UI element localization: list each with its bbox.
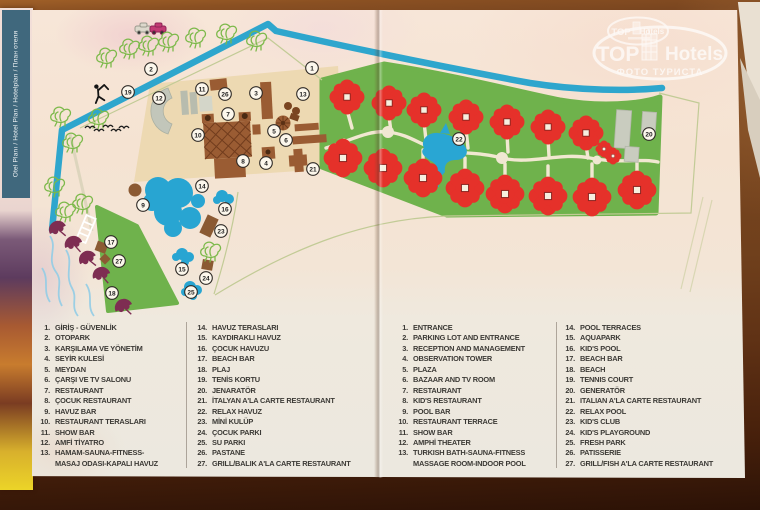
legend-number: 18. [558, 365, 575, 375]
legend-number: 25. [558, 438, 575, 448]
legend-text: MİNİ KULÜP [212, 417, 253, 427]
legend-item: 8.ÇOCUK RESTAURANT [33, 396, 185, 406]
legend-number: 19. [558, 375, 575, 385]
legend-number: 27. [558, 459, 575, 469]
legend-item: 3.RECEPTION AND MANAGEMENT [391, 344, 553, 354]
legend-number: 8. [33, 396, 50, 406]
legend-text: PATISSERIE [580, 448, 621, 458]
legend-number: 3. [391, 344, 408, 354]
legend-text: KID'S RESTAURANT [413, 396, 482, 406]
legend-number: 16. [190, 344, 207, 354]
legend-item: 4.OBSERVATION TOWER [391, 354, 553, 364]
legend-number: 19. [190, 375, 207, 385]
legend-item: 17.BEACH BAR [558, 354, 740, 364]
legend-text: RELAX HAVUZ [212, 407, 262, 417]
legend-text: GRILL/BALIK A'LA CARTE RESTAURANT [212, 459, 351, 469]
legend-number: 7. [391, 386, 408, 396]
spine-title-band: Otel Planı / Hotel Plan / Hotelplan / Пл… [2, 10, 30, 198]
legend-number: 23. [558, 417, 575, 427]
legend-number: 13. [391, 448, 408, 458]
legend-text: PLAZA [413, 365, 437, 375]
legend-item: 20.GENERATÖR [558, 386, 740, 396]
legend-text: SHOW BAR [55, 428, 94, 438]
legend-number: 10. [33, 417, 50, 427]
legend-number: 14. [558, 323, 575, 333]
legend-number: 2. [391, 333, 408, 343]
legend-text: ENTRANCE [413, 323, 452, 333]
legend-number: 3. [33, 344, 50, 354]
legend-number: 1. [391, 323, 408, 333]
legend-number: 6. [391, 375, 408, 385]
legend-text: HAMAM-SAUNA-FITNESS- MASAJ ODASI-KAPALI … [55, 448, 158, 469]
legend-number: 10. [391, 417, 408, 427]
legend-item: 21.ITALIAN A'LA CARTE RESTAURANT [558, 396, 740, 406]
legend-number: 12. [33, 438, 50, 448]
legend-item: 5.MEYDAN [33, 365, 185, 375]
legend-number: 2. [33, 333, 50, 343]
legend-number: 16. [558, 344, 575, 354]
legend-item: 24.KID'S PLAYGROUND [558, 428, 740, 438]
legend-item: 17.BEACH BAR [190, 354, 370, 364]
legend-number: 15. [190, 333, 207, 343]
legend-item: 9.POOL BAR [391, 407, 553, 417]
legend-item: 5.PLAZA [391, 365, 553, 375]
legend-number: 24. [190, 428, 207, 438]
legend-text: GENERATÖR [580, 386, 625, 396]
legend-number: 9. [391, 407, 408, 417]
legend-item: 14.POOL TERRACES [558, 323, 740, 333]
legend-number: 26. [190, 448, 207, 458]
legend-text: HAVUZ TERASLARI [212, 323, 278, 333]
photo-of-hotel-map-brochure: Otel Planı / Hotel Plan / Hotelplan / Пл… [0, 0, 760, 510]
legend-item: 25.FRESH PARK [558, 438, 740, 448]
legend-text: RESTAURANT TERRACE [413, 417, 498, 427]
legend-number: 7. [33, 386, 50, 396]
legend-item: 16.ÇOCUK HAVUZU [190, 344, 370, 354]
legend-item: 6.BAZAAR AND TV ROOM [391, 375, 553, 385]
legend-item: 3.KARŞILAMA VE YÖNETİM [33, 344, 185, 354]
legend-item: 11.SHOW BAR [391, 428, 553, 438]
legend-item: 12.AMPHİ THEATER [391, 438, 553, 448]
legend-column-tr-2: 14.HAVUZ TERASLARI15.KAYDIRAKLI HAVUZ16.… [190, 323, 370, 469]
legend-text: SHOW BAR [413, 428, 452, 438]
legend-text: OTOPARK [55, 333, 90, 343]
spine-title: Otel Planı / Hotel Plan / Hotelplan / Пл… [13, 31, 20, 177]
legend-text: ITALIAN A'LA CARTE RESTAURANT [580, 396, 701, 406]
legend-text: AMPHİ THEATER [413, 438, 471, 448]
legend-text: BAZAAR AND TV ROOM [413, 375, 495, 385]
legend-text: PLAJ [212, 365, 230, 375]
legend-number: 13. [33, 448, 50, 458]
legend-item: 21.İTALYAN A'LA CARTE RESTAURANT [190, 396, 370, 406]
legend-number: 22. [558, 407, 575, 417]
legend-number: 4. [391, 354, 408, 364]
legend-number: 26. [558, 448, 575, 458]
legend-text: GİRİŞ - GÜVENLİK [55, 323, 117, 333]
legend-item: 18.BEACH [558, 365, 740, 375]
legend-item: 8.KID'S RESTAURANT [391, 396, 553, 406]
legend-number: 22. [190, 407, 207, 417]
legend-number: 8. [391, 396, 408, 406]
legend-number: 5. [33, 365, 50, 375]
legend-number: 14. [190, 323, 207, 333]
legend-item: 2.PARKING LOT AND ENTRANCE [391, 333, 553, 343]
legend-text: RESTAURANT [55, 386, 103, 396]
legend-text: RESTAURANT [413, 386, 461, 396]
legend-number: 9. [33, 407, 50, 417]
legend-number: 25. [190, 438, 207, 448]
legend-item: 25.SU PARKI [190, 438, 370, 448]
legend-item: 9.HAVUZ BAR [33, 407, 185, 417]
legend-item: 2.OTOPARK [33, 333, 185, 343]
legend-number: 18. [190, 365, 207, 375]
legend-text: AMFİ TİYATRO [55, 438, 104, 448]
legend-item: 15.AQUAPARK [558, 333, 740, 343]
legend-item: 18.PLAJ [190, 365, 370, 375]
legend-text: RECEPTION AND MANAGEMENT [413, 344, 525, 354]
brochure-cover-edge: Otel Planı / Hotel Plan / Hotelplan / Пл… [0, 8, 33, 490]
legend-number: 6. [33, 375, 50, 385]
legend-text: HAVUZ BAR [55, 407, 96, 417]
legend-item: 1.ENTRANCE [391, 323, 553, 333]
legend-text: AQUAPARK [580, 333, 621, 343]
legend-text: SU PARKI [212, 438, 245, 448]
legend-item: 7.RESTAURANT [33, 386, 185, 396]
legend-item: 23.KID'S CLUB [558, 417, 740, 427]
legend-text: JENARATÖR [212, 386, 256, 396]
legend-item: 4.SEYİR KULESİ [33, 354, 185, 364]
legend-text: RESTAURANT TERASLARI [55, 417, 146, 427]
legend-number: 24. [558, 428, 575, 438]
legend-item: 10.RESTAURANT TERASLARI [33, 417, 185, 427]
legend-item: 19.TENİS KORTU [190, 375, 370, 385]
legend-item: 13.HAMAM-SAUNA-FITNESS- MASAJ ODASI-KAPA… [33, 448, 185, 469]
legend-text: KARŞILAMA VE YÖNETİM [55, 344, 143, 354]
legend-text: PASTANE [212, 448, 245, 458]
legend-divider [186, 322, 187, 468]
legend-column-tr-1: 1.GİRİŞ - GÜVENLİK2.OTOPARK3.KARŞILAMA V… [33, 323, 185, 469]
legend-text: ÇARŞI VE TV SALONU [55, 375, 131, 385]
legend-item: 15.KAYDIRAKLI HAVUZ [190, 333, 370, 343]
legend-text: İTALYAN A'LA CARTE RESTAURANT [212, 396, 335, 406]
legend-text: ÇOCUK PARKI [212, 428, 261, 438]
legend-text: KID'S PLAYGROUND [580, 428, 650, 438]
legend-number: 21. [558, 396, 575, 406]
legend-item: 10.RESTAURANT TERRACE [391, 417, 553, 427]
legend-item: 6.ÇARŞI VE TV SALONU [33, 375, 185, 385]
legend-divider [556, 322, 557, 468]
legend-item: 27.GRILL/BALIK A'LA CARTE RESTAURANT [190, 459, 370, 469]
legend-item: 12.AMFİ TİYATRO [33, 438, 185, 448]
legend-item: 19.TENNIS COURT [558, 375, 740, 385]
legend-text: TURKISH BATH-SAUNA-FITNESS MASSAGE ROOM-… [413, 448, 526, 469]
legend-number: 17. [190, 354, 207, 364]
legend-text: BEACH BAR [212, 354, 255, 364]
legend-item: 26.PASTANE [190, 448, 370, 458]
legend-text: BEACH BAR [580, 354, 623, 364]
legend-text: TENNIS COURT [580, 375, 633, 385]
legend-text: PARKING LOT AND ENTRANCE [413, 333, 519, 343]
legend-text: KID'S POOL [580, 344, 620, 354]
legend-number: 1. [33, 323, 50, 333]
legend-item: 16.KID'S POOL [558, 344, 740, 354]
legend-number: 20. [190, 386, 207, 396]
legend-item: 1.GİRİŞ - GÜVENLİK [33, 323, 185, 333]
legend-text: POOL BAR [413, 407, 450, 417]
legend-text: BEACH [580, 365, 605, 375]
legend-item: 20.JENARATÖR [190, 386, 370, 396]
legend-number: 11. [391, 428, 408, 438]
legend-number: 11. [33, 428, 50, 438]
legend-item: 13.TURKISH BATH-SAUNA-FITNESS MASSAGE RO… [391, 448, 553, 469]
legend-text: MEYDAN [55, 365, 86, 375]
legend-item: 23.MİNİ KULÜP [190, 417, 370, 427]
legend-text: KAYDIRAKLI HAVUZ [212, 333, 281, 343]
legend-column-en-2: 14.POOL TERRACES15.AQUAPARK16.KID'S POOL… [558, 323, 740, 469]
legend-number: 15. [558, 333, 575, 343]
legend-item: 11.SHOW BAR [33, 428, 185, 438]
legend-item: 22.RELAX HAVUZ [190, 407, 370, 417]
legend-text: POOL TERRACES [580, 323, 641, 333]
legend-column-en-1: 1.ENTRANCE2.PARKING LOT AND ENTRANCE3.RE… [391, 323, 553, 469]
legend-text: GRILL/FISH A'LA CARTE RESTAURANT [580, 459, 713, 469]
legend-item: 22.RELAX POOL [558, 407, 740, 417]
legend-text: KID'S CLUB [580, 417, 620, 427]
legend-text: ÇOCUK HAVUZU [212, 344, 269, 354]
legend-text: FRESH PARK [580, 438, 626, 448]
legend-number: 5. [391, 365, 408, 375]
legend-number: 12. [391, 438, 408, 448]
legend-number: 21. [190, 396, 207, 406]
legend-text: ÇOCUK RESTAURANT [55, 396, 131, 406]
legend-number: 27. [190, 459, 207, 469]
legend-number: 20. [558, 386, 575, 396]
legend-item: 7.RESTAURANT [391, 386, 553, 396]
legend-text: OBSERVATION TOWER [413, 354, 492, 364]
legend-text: TENİS KORTU [212, 375, 260, 385]
legend-number: 4. [33, 354, 50, 364]
legend-number: 23. [190, 417, 207, 427]
legend-item: 27.GRILL/FISH A'LA CARTE RESTAURANT [558, 459, 740, 469]
legend-item: 26.PATISSERIE [558, 448, 740, 458]
legend-item: 24.ÇOCUK PARKI [190, 428, 370, 438]
legend-text: RELAX POOL [580, 407, 626, 417]
legend-item: 14.HAVUZ TERASLARI [190, 323, 370, 333]
legend-text: SEYİR KULESİ [55, 354, 104, 364]
legend-number: 17. [558, 354, 575, 364]
